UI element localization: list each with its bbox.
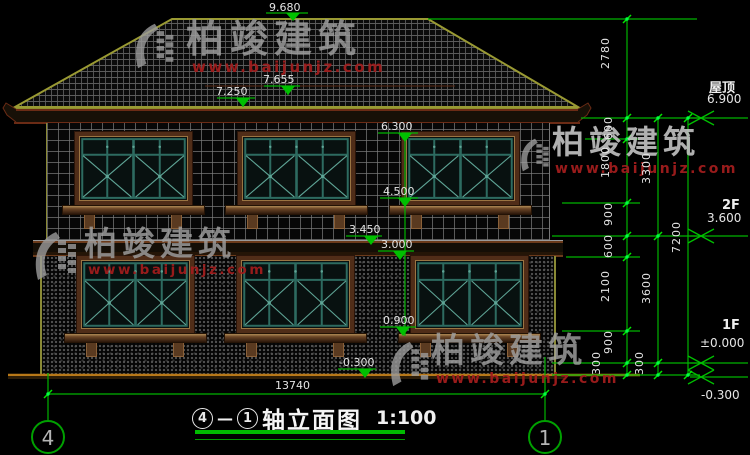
title-underline-thin xyxy=(195,439,405,440)
dim-600: 600 xyxy=(602,234,615,258)
window-sill xyxy=(389,205,532,215)
watermark-brand: 柏竣建筑 xyxy=(186,20,362,58)
title-dash: — xyxy=(217,409,233,428)
title-axis-end-bubble: 1 xyxy=(237,408,258,429)
dim-900: 900 xyxy=(602,330,615,354)
elevation-label-ground: -0.300 xyxy=(339,356,374,369)
level-value-1f: ±0.000 xyxy=(700,336,744,350)
watermark-url: www.baijunjz.com xyxy=(88,264,266,278)
watermark-logo xyxy=(124,20,180,72)
elevation-label-2f-window-top: 6.300 xyxy=(381,120,413,133)
dim-600: 600 xyxy=(602,116,615,140)
window-sill xyxy=(64,333,207,343)
level-value-ground: -0.300 xyxy=(701,388,740,402)
dim-300: 300 xyxy=(590,351,603,375)
watermark-logo xyxy=(516,127,550,183)
dim-900: 900 xyxy=(602,202,615,226)
window-2f-left xyxy=(75,132,192,205)
title-underline-thick xyxy=(195,430,405,434)
elevation-label-ridge: 9.680 xyxy=(269,1,301,14)
sill-bracket xyxy=(333,343,344,357)
window-2f-right xyxy=(402,132,519,205)
watermark-brand: 柏竣建筑 xyxy=(552,126,700,158)
axis-bubble-left: 4 xyxy=(32,426,64,450)
watermark-brand: 柏竣建筑 xyxy=(431,334,587,368)
dim-3600: 3600 xyxy=(640,272,653,304)
elevation-label-belt-bottom: 3.000 xyxy=(381,238,413,251)
elevation-label-roof-lower: 7.250 xyxy=(216,85,248,98)
eave-fascia xyxy=(14,108,580,124)
elevation-label-roof-upper: 7.655 xyxy=(263,73,295,86)
dim-1800: 1800 xyxy=(599,146,612,178)
sill-bracket xyxy=(498,215,509,229)
window-sill xyxy=(224,333,367,343)
dim-total-width: 13740 xyxy=(275,379,310,392)
watermark-brand: 柏竣建筑 xyxy=(84,227,236,260)
elevation-label-2f-window-sill: 4.500 xyxy=(383,185,415,198)
window-1f-right xyxy=(411,256,528,333)
level-value-roof: 6.900 xyxy=(707,92,741,106)
sill-bracket xyxy=(247,215,258,229)
sill-bracket xyxy=(411,215,422,229)
sill-bracket xyxy=(334,215,345,229)
window-sill xyxy=(225,205,368,215)
level-label-1f: 1F xyxy=(722,318,740,333)
window-2f-middle xyxy=(238,132,355,205)
level-value-2f: 3.600 xyxy=(707,211,741,225)
elevation-label-belt-top: 3.450 xyxy=(349,223,381,236)
dim-3300: 3300 xyxy=(640,152,653,184)
dim-7200: 7200 xyxy=(670,221,683,253)
title-scale: 1:100 xyxy=(376,407,436,429)
watermark-logo xyxy=(28,226,78,286)
dim-2100: 2100 xyxy=(599,270,612,302)
title-axis-start-bubble: 4 xyxy=(192,408,213,429)
elevation-drawing: 柏竣建筑 www.baijunjz.com 柏竣建筑 www.baijunjz.… xyxy=(0,0,750,455)
watermark-logo xyxy=(384,337,430,391)
elevation-label-1f-window-sill: 0.900 xyxy=(383,314,415,327)
sill-bracket xyxy=(173,343,184,357)
sill-bracket xyxy=(86,343,97,357)
sill-bracket xyxy=(246,343,257,357)
axis-bubble-right: 1 xyxy=(529,426,561,450)
dim-2780: 2780 xyxy=(599,37,612,69)
dim-300: 300 xyxy=(633,351,646,375)
window-sill xyxy=(62,205,205,215)
